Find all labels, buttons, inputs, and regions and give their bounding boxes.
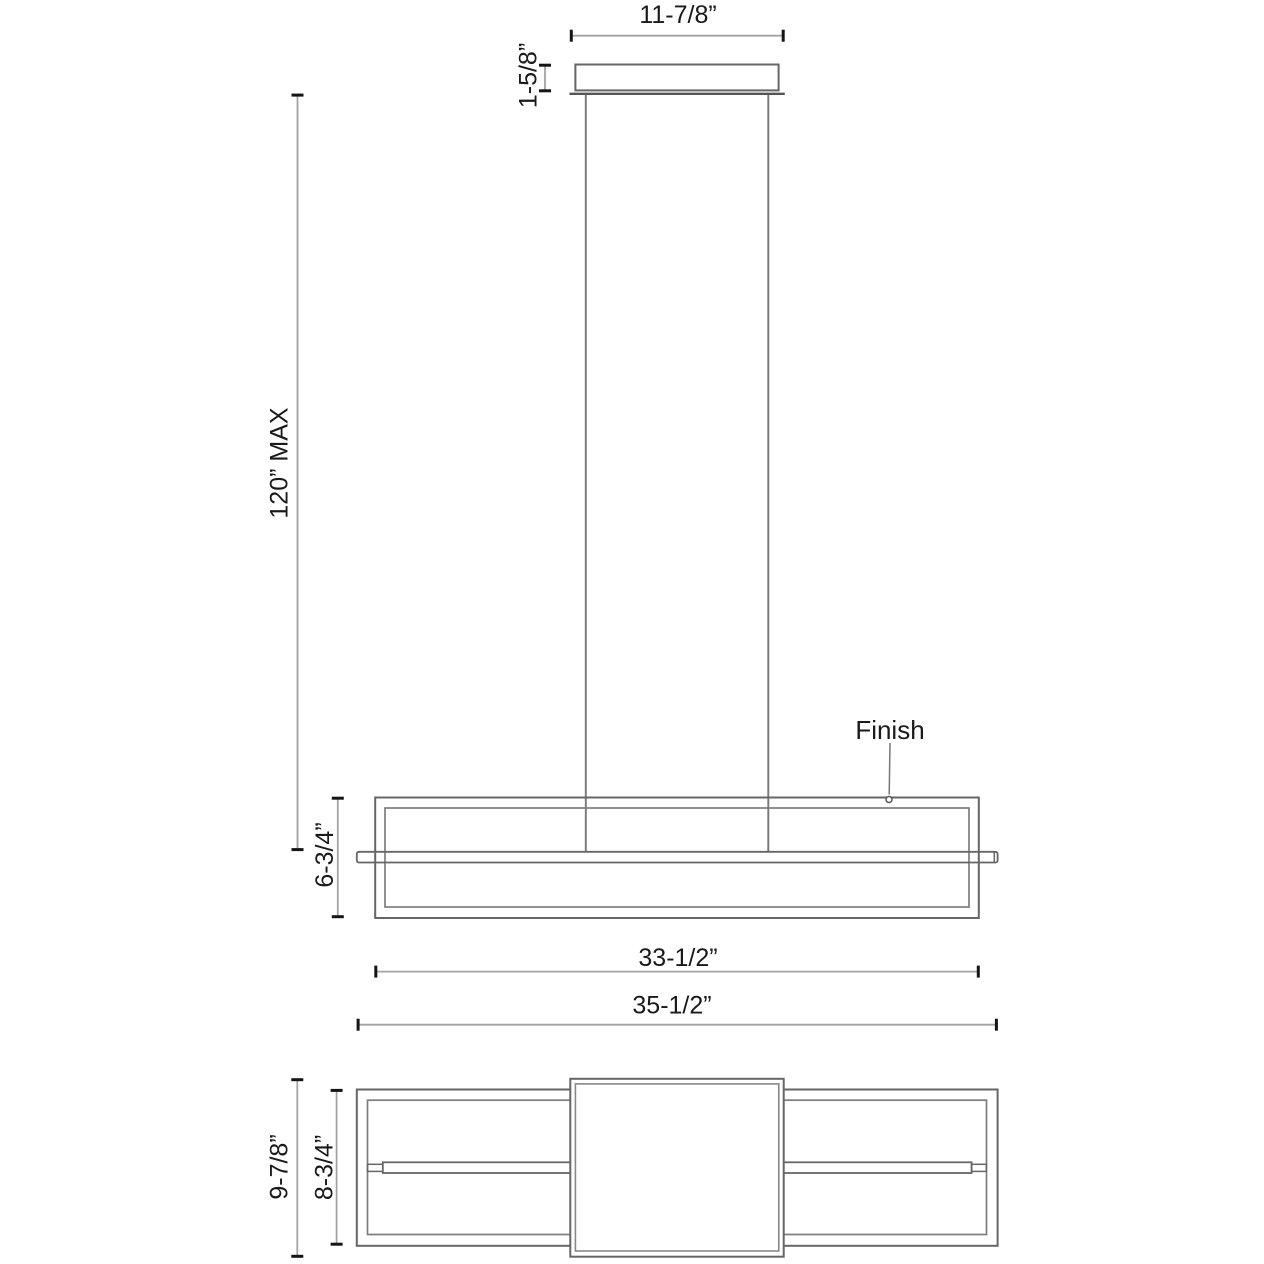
svg-text:9-7/8”: 9-7/8” [266,1134,294,1199]
svg-text:1-5/8”: 1-5/8” [515,43,543,108]
svg-text:Finish: Finish [855,715,924,745]
svg-text:8-3/4”: 8-3/4” [311,1135,339,1200]
svg-text:120” MAX: 120” MAX [266,407,294,518]
svg-text:11-7/8”: 11-7/8” [639,1,716,29]
svg-text:35-1/2”: 35-1/2” [632,992,711,1020]
svg-text:6-3/4”: 6-3/4” [311,822,339,887]
svg-text:33-1/2”: 33-1/2” [638,944,717,972]
